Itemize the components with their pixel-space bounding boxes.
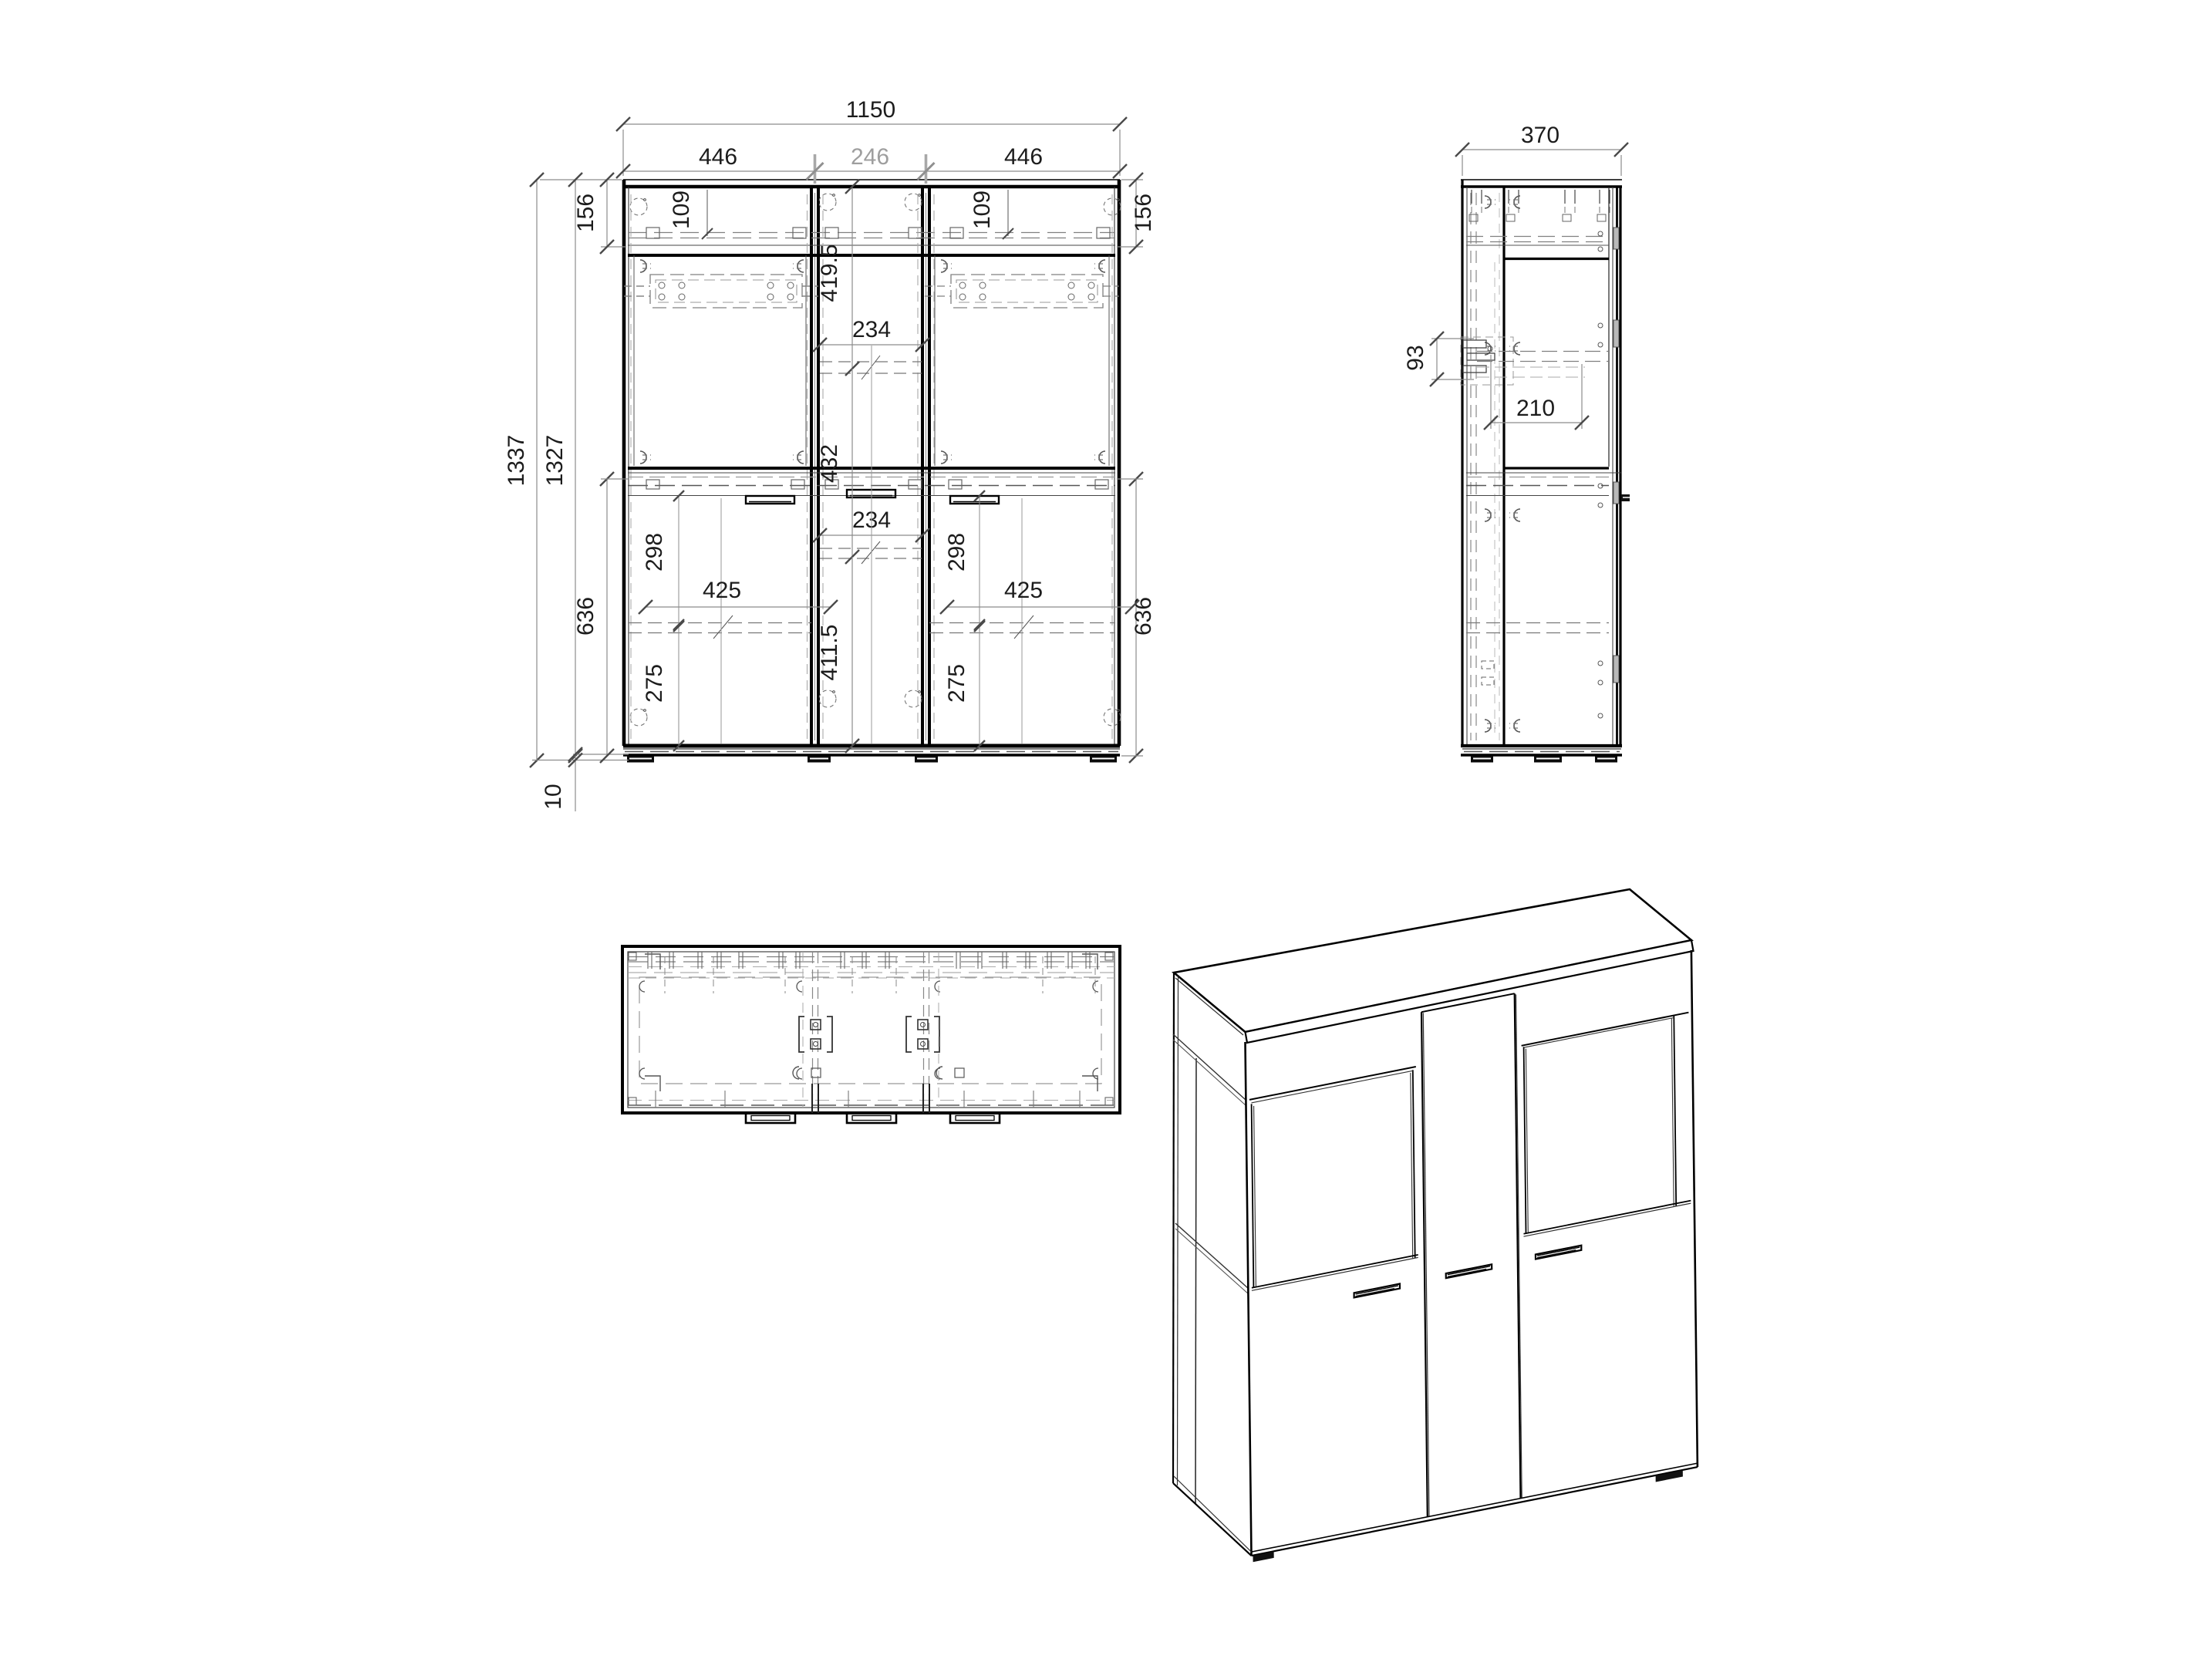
svg-text:1327: 1327: [542, 435, 568, 487]
svg-text:234: 234: [852, 317, 891, 342]
svg-text:298: 298: [642, 533, 667, 572]
svg-text:425: 425: [1004, 578, 1043, 603]
svg-text:446: 446: [1004, 144, 1043, 170]
svg-text:425: 425: [703, 578, 741, 603]
svg-text:275: 275: [944, 664, 969, 703]
svg-text:298: 298: [944, 533, 969, 572]
svg-text:411.5: 411.5: [817, 625, 842, 681]
svg-text:1150: 1150: [846, 97, 896, 123]
svg-text:246: 246: [851, 144, 889, 170]
svg-text:636: 636: [1131, 597, 1156, 636]
svg-text:156: 156: [1131, 194, 1156, 232]
svg-text:432: 432: [817, 444, 842, 483]
svg-text:109: 109: [669, 191, 694, 229]
svg-text:446: 446: [699, 144, 737, 170]
svg-text:419.5: 419.5: [817, 244, 842, 302]
svg-text:109: 109: [969, 191, 995, 229]
svg-text:370: 370: [1521, 123, 1560, 148]
svg-text:275: 275: [642, 664, 667, 703]
svg-text:93: 93: [1403, 345, 1428, 370]
svg-text:10: 10: [541, 784, 566, 809]
svg-text:156: 156: [573, 194, 599, 232]
svg-text:210: 210: [1516, 396, 1555, 421]
svg-text:636: 636: [573, 597, 599, 636]
svg-text:1337: 1337: [504, 435, 529, 487]
